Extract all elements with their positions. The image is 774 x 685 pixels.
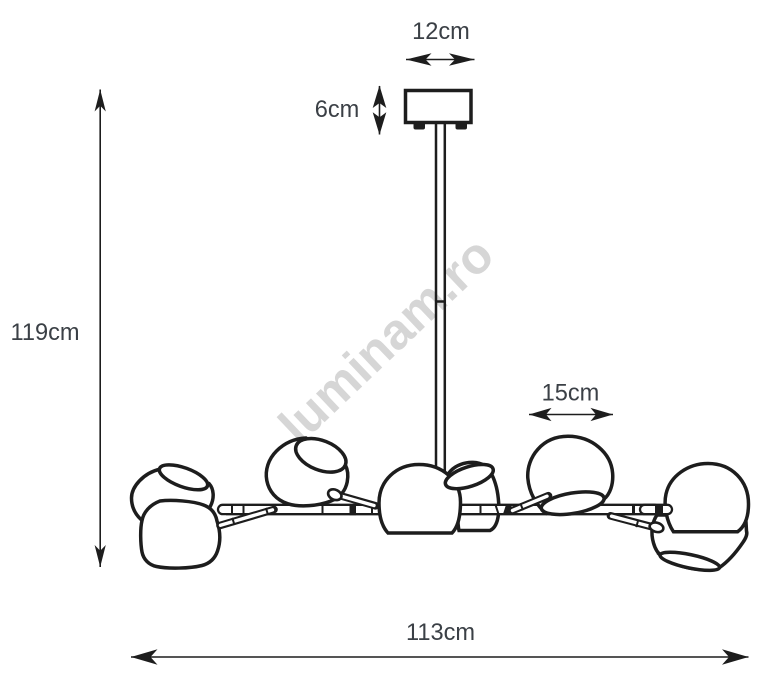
svg-text:luminam.ro: luminam.ro bbox=[268, 225, 505, 454]
svg-text:119cm: 119cm bbox=[10, 320, 79, 346]
svg-text:6cm: 6cm bbox=[315, 97, 360, 123]
svg-text:12cm: 12cm bbox=[412, 19, 470, 45]
svg-text:15cm: 15cm bbox=[542, 381, 600, 407]
svg-text:113cm: 113cm bbox=[406, 620, 475, 646]
